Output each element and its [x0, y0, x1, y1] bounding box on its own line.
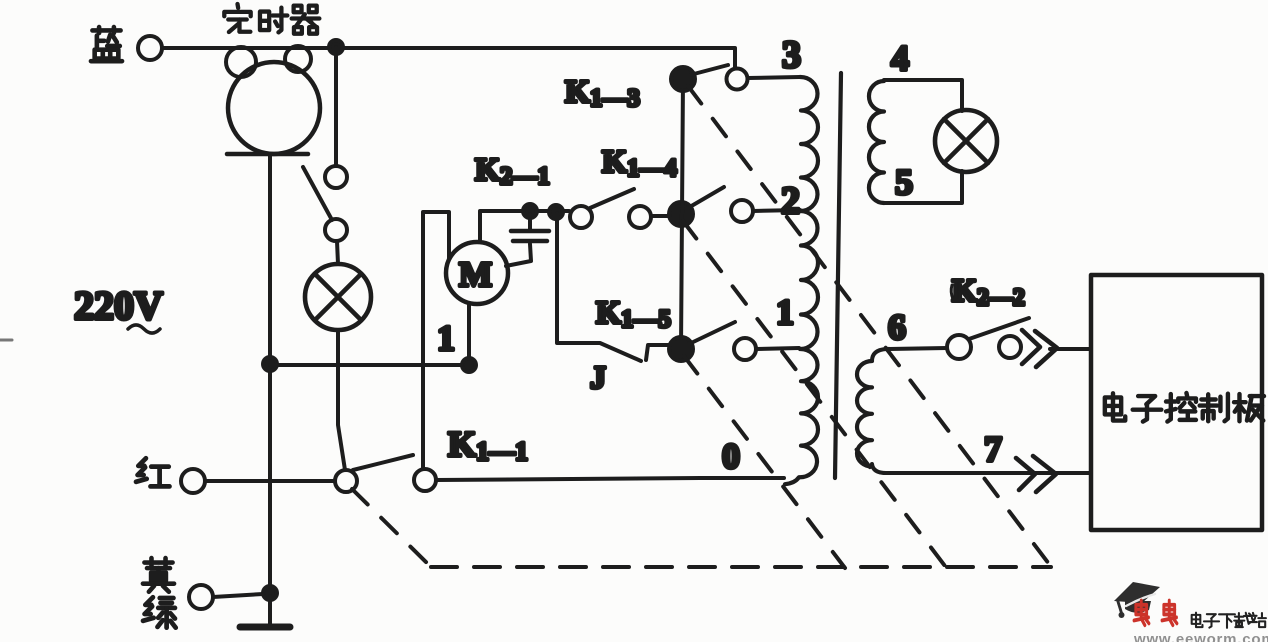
svg-text:4: 4 — [891, 38, 909, 78]
svg-text:5: 5 — [895, 162, 913, 202]
svg-text:2: 2 — [781, 180, 800, 222]
svg-text:www.eeworm.com: www.eeworm.com — [1133, 631, 1268, 642]
svg-text:0: 0 — [722, 436, 740, 476]
svg-text:6: 6 — [888, 307, 906, 347]
svg-text:J: J — [590, 359, 606, 395]
svg-text:7: 7 — [984, 429, 1002, 469]
svg-text:M: M — [459, 255, 492, 294]
svg-text:1: 1 — [776, 292, 794, 332]
svg-text:220V: 220V — [74, 283, 163, 328]
svg-text:3: 3 — [782, 34, 801, 76]
svg-text:1: 1 — [437, 318, 455, 358]
